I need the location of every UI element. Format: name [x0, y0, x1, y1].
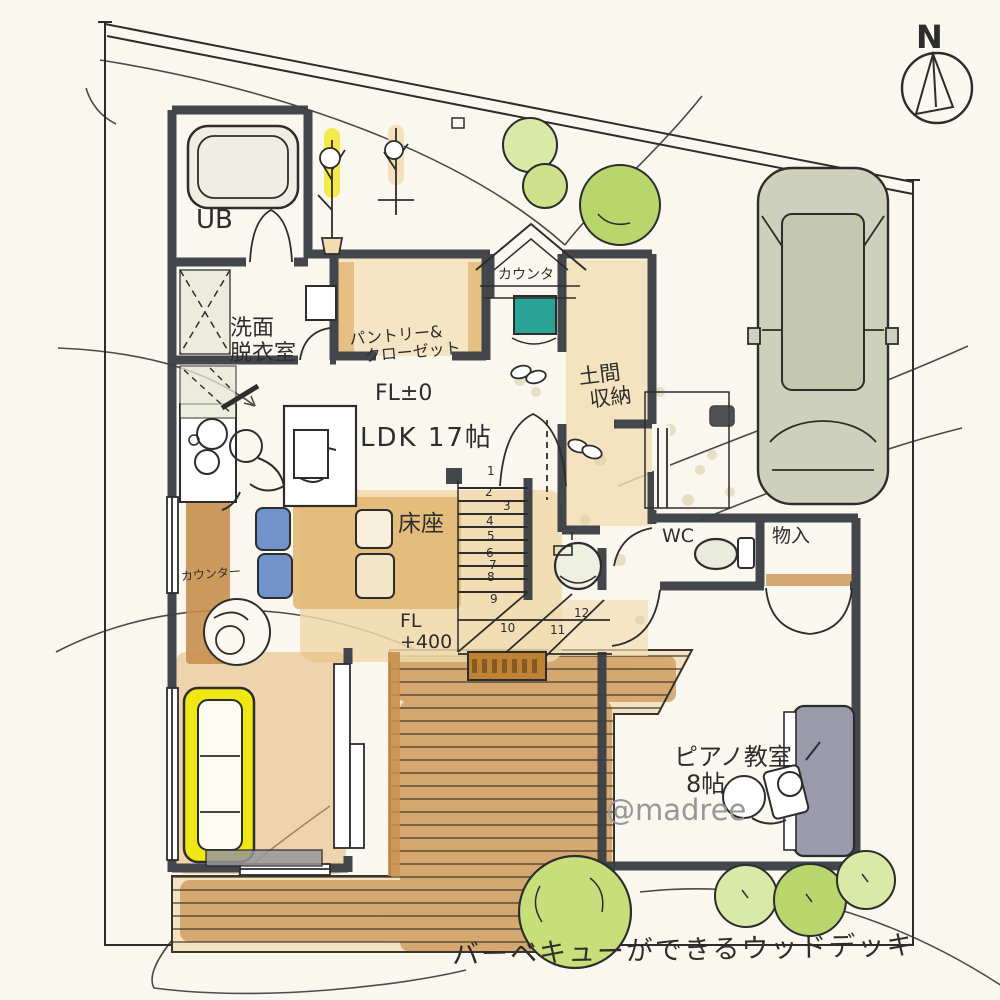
room-label-doma: 土間収納 [572, 313, 639, 459]
stair-step-number: 11 [550, 623, 565, 637]
room-label-ub: UB [196, 206, 233, 235]
stair-step-number: 12 [574, 606, 589, 620]
labels: N UB 洗面脱衣室 パントリー&クローゼット カウンタ 土間収納 FL±0 L… [0, 0, 1000, 1000]
label-fl-raised: FL+400 [400, 568, 452, 696]
label-fl-zero: FL±0 [375, 382, 432, 407]
stair-step-number: 5 [487, 529, 495, 543]
label-kitchen-counter: カウンター [181, 565, 242, 584]
north-label: N [916, 20, 943, 56]
stair-step-number: 10 [500, 621, 515, 635]
floor-plan-sketch: N UB 洗面脱衣室 パントリー&クローゼット カウンタ 土間収納 FL±0 L… [0, 0, 1000, 1000]
room-label-washroom: 洗面脱衣室 [230, 268, 296, 416]
stair-step-number: 8 [487, 570, 495, 584]
room-label-piano: ピアノ教室8帖 [674, 690, 792, 851]
stair-step-number: 9 [490, 592, 498, 606]
watermark: @madree [606, 794, 746, 826]
stair-step-number: 3 [503, 499, 511, 513]
room-label-wc: WC [662, 526, 694, 547]
stair-step-number: 4 [486, 514, 494, 528]
room-label-ldk: LDK 17帖 [360, 424, 493, 453]
label-entrance-counter: カウンタ [498, 268, 554, 284]
deck-note: バーベキューができるウッドデッキ [452, 931, 916, 971]
label-yukaza: 床座 [398, 512, 444, 538]
stair-step-number: 1 [487, 464, 495, 478]
room-label-storage: 物入 [772, 526, 810, 547]
stair-step-number: 2 [485, 485, 493, 499]
